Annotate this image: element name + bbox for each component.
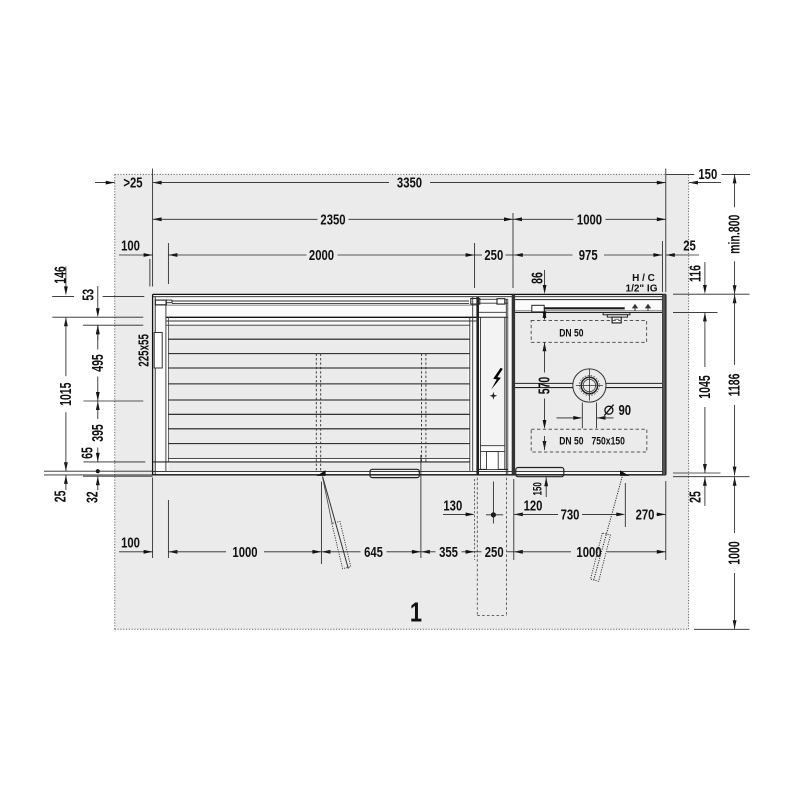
svg-text:3350: 3350 [397, 174, 422, 191]
svg-text:100: 100 [121, 534, 140, 551]
svg-text:730: 730 [561, 506, 580, 523]
svg-text:355: 355 [439, 544, 458, 561]
svg-text:86: 86 [528, 272, 546, 284]
svg-text:25: 25 [683, 237, 696, 254]
svg-text:225x55: 225x55 [135, 334, 151, 367]
svg-text:1000: 1000 [576, 544, 601, 561]
svg-text:750x150: 750x150 [592, 436, 626, 448]
svg-text:DN 50: DN 50 [559, 436, 584, 448]
svg-text:90: 90 [619, 401, 632, 418]
svg-text:645: 645 [364, 544, 383, 561]
svg-text:1000: 1000 [726, 541, 744, 564]
svg-text:116: 116 [686, 265, 704, 282]
svg-text:53: 53 [79, 289, 97, 301]
svg-text:25: 25 [686, 491, 704, 503]
svg-text:1000: 1000 [232, 544, 257, 561]
svg-text:1/2" IG: 1/2" IG [626, 283, 658, 294]
svg-text:1015: 1015 [57, 382, 75, 405]
svg-text:146: 146 [51, 266, 69, 284]
svg-text:975: 975 [579, 247, 598, 264]
svg-text:>25: >25 [123, 174, 142, 191]
svg-text:2350: 2350 [320, 211, 345, 228]
svg-text:570: 570 [536, 377, 554, 395]
svg-text:1: 1 [410, 597, 422, 628]
svg-text:150: 150 [532, 482, 545, 496]
svg-text:1186: 1186 [726, 373, 744, 396]
svg-text:270: 270 [636, 506, 655, 523]
svg-text:min.800: min.800 [726, 215, 744, 254]
svg-text:120: 120 [524, 497, 543, 514]
svg-text:100: 100 [121, 237, 140, 254]
svg-text:1045: 1045 [696, 375, 714, 398]
svg-text:32: 32 [83, 491, 101, 503]
svg-text:65: 65 [78, 447, 96, 459]
svg-text:1000: 1000 [577, 211, 602, 228]
svg-text:250: 250 [484, 247, 503, 264]
svg-text:250: 250 [485, 544, 504, 561]
svg-text:495: 495 [89, 354, 107, 372]
svg-text:DN 50: DN 50 [559, 328, 584, 340]
svg-text:150: 150 [698, 166, 717, 183]
svg-text:130: 130 [443, 497, 462, 514]
svg-text:395: 395 [89, 424, 107, 442]
svg-text:2000: 2000 [309, 247, 334, 264]
svg-text:25: 25 [51, 491, 69, 503]
